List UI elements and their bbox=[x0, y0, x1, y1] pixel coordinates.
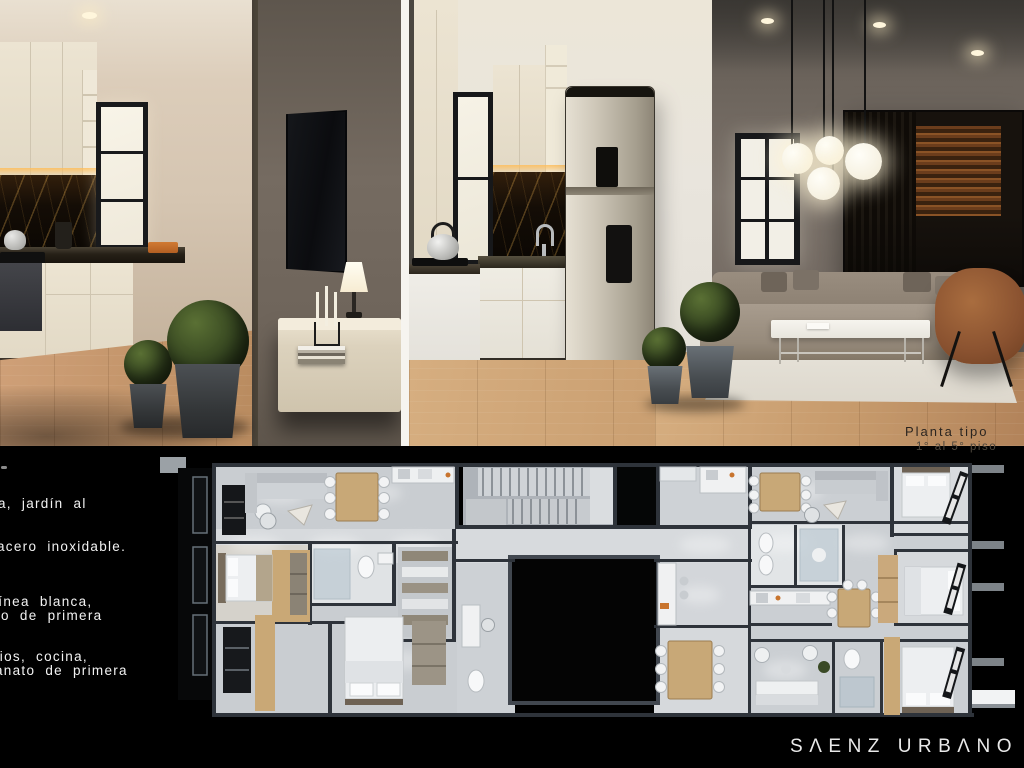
plan-center-void bbox=[512, 559, 656, 701]
marble-backsplash bbox=[493, 172, 567, 262]
plan-right-ledges bbox=[972, 465, 1015, 708]
pendant-globe bbox=[845, 143, 882, 180]
sofa-pillow bbox=[903, 272, 931, 292]
ceiling-downlight bbox=[873, 22, 886, 28]
note-line: acero inoxidable. bbox=[0, 539, 126, 554]
large-plant-bush bbox=[680, 282, 740, 342]
butterfly-chair bbox=[935, 268, 1024, 364]
pendant-globe bbox=[807, 167, 840, 200]
floorplan-image bbox=[160, 455, 1015, 730]
candelabra-frame bbox=[314, 322, 340, 346]
plan-title: Planta tipo bbox=[905, 424, 988, 439]
fridge-control-panel bbox=[596, 147, 618, 187]
note-line: anato de primera bbox=[0, 663, 128, 678]
brand-logo: SΛENZ URBΛNO bbox=[790, 736, 1018, 758]
candle bbox=[325, 286, 328, 326]
candle bbox=[334, 292, 337, 326]
ceiling-downlight bbox=[971, 50, 984, 56]
small-plant-pot bbox=[128, 384, 168, 428]
pendant-globe bbox=[815, 136, 844, 165]
faucet bbox=[536, 224, 554, 246]
render-photo-kitchen-tv-wall bbox=[0, 0, 401, 446]
coffee-table bbox=[771, 320, 930, 338]
ceiling-downlight bbox=[761, 18, 774, 24]
water-dispenser bbox=[606, 225, 632, 283]
pendant-rod bbox=[823, 0, 825, 140]
pendant-rod bbox=[864, 0, 866, 148]
plan-subtitle: 1° al 5° piso bbox=[916, 441, 997, 453]
panel-divider bbox=[401, 0, 409, 446]
note-line: rios, cocina, bbox=[0, 649, 88, 664]
pendant-rod bbox=[791, 0, 793, 150]
oven-front bbox=[0, 263, 42, 331]
small-plant-bush bbox=[124, 340, 172, 388]
cropped-text-fragment bbox=[1, 466, 7, 469]
sofa-pillow bbox=[761, 272, 787, 292]
pot-on-stove bbox=[4, 230, 26, 250]
dark-ceiling bbox=[712, 0, 1024, 70]
note-line: a, jardín al bbox=[0, 496, 87, 511]
presentation-board: Planta tipo 1° al 5° piso a, jardín al a… bbox=[0, 0, 1024, 768]
small-plant-pot bbox=[646, 366, 684, 404]
small-plant-bush bbox=[642, 327, 686, 371]
countertop bbox=[478, 256, 567, 268]
abstract-artwork bbox=[843, 110, 1024, 287]
open-shelf-tower bbox=[545, 45, 567, 172]
note-line: co de primera bbox=[0, 608, 102, 623]
sofa-pillow bbox=[793, 270, 819, 290]
kettle bbox=[427, 234, 459, 260]
render-photo-kitchen-living bbox=[409, 0, 1024, 446]
large-plant-pot bbox=[172, 364, 243, 438]
cutting-board bbox=[148, 242, 178, 253]
pendant-globe bbox=[782, 143, 813, 174]
table-decor bbox=[807, 323, 829, 329]
ceiling-downlight bbox=[82, 12, 97, 19]
book-stack bbox=[298, 346, 345, 364]
large-plant-pot bbox=[684, 346, 736, 398]
candle bbox=[316, 292, 319, 326]
utensil-jar bbox=[55, 222, 72, 249]
plan-left-balcony bbox=[160, 457, 215, 700]
kitchen-window bbox=[96, 102, 148, 250]
wall-mounted-tv bbox=[286, 110, 347, 273]
note-line: línea blanca, bbox=[0, 594, 92, 609]
kitchen-window bbox=[453, 92, 493, 265]
open-shelf-tower bbox=[82, 70, 97, 175]
